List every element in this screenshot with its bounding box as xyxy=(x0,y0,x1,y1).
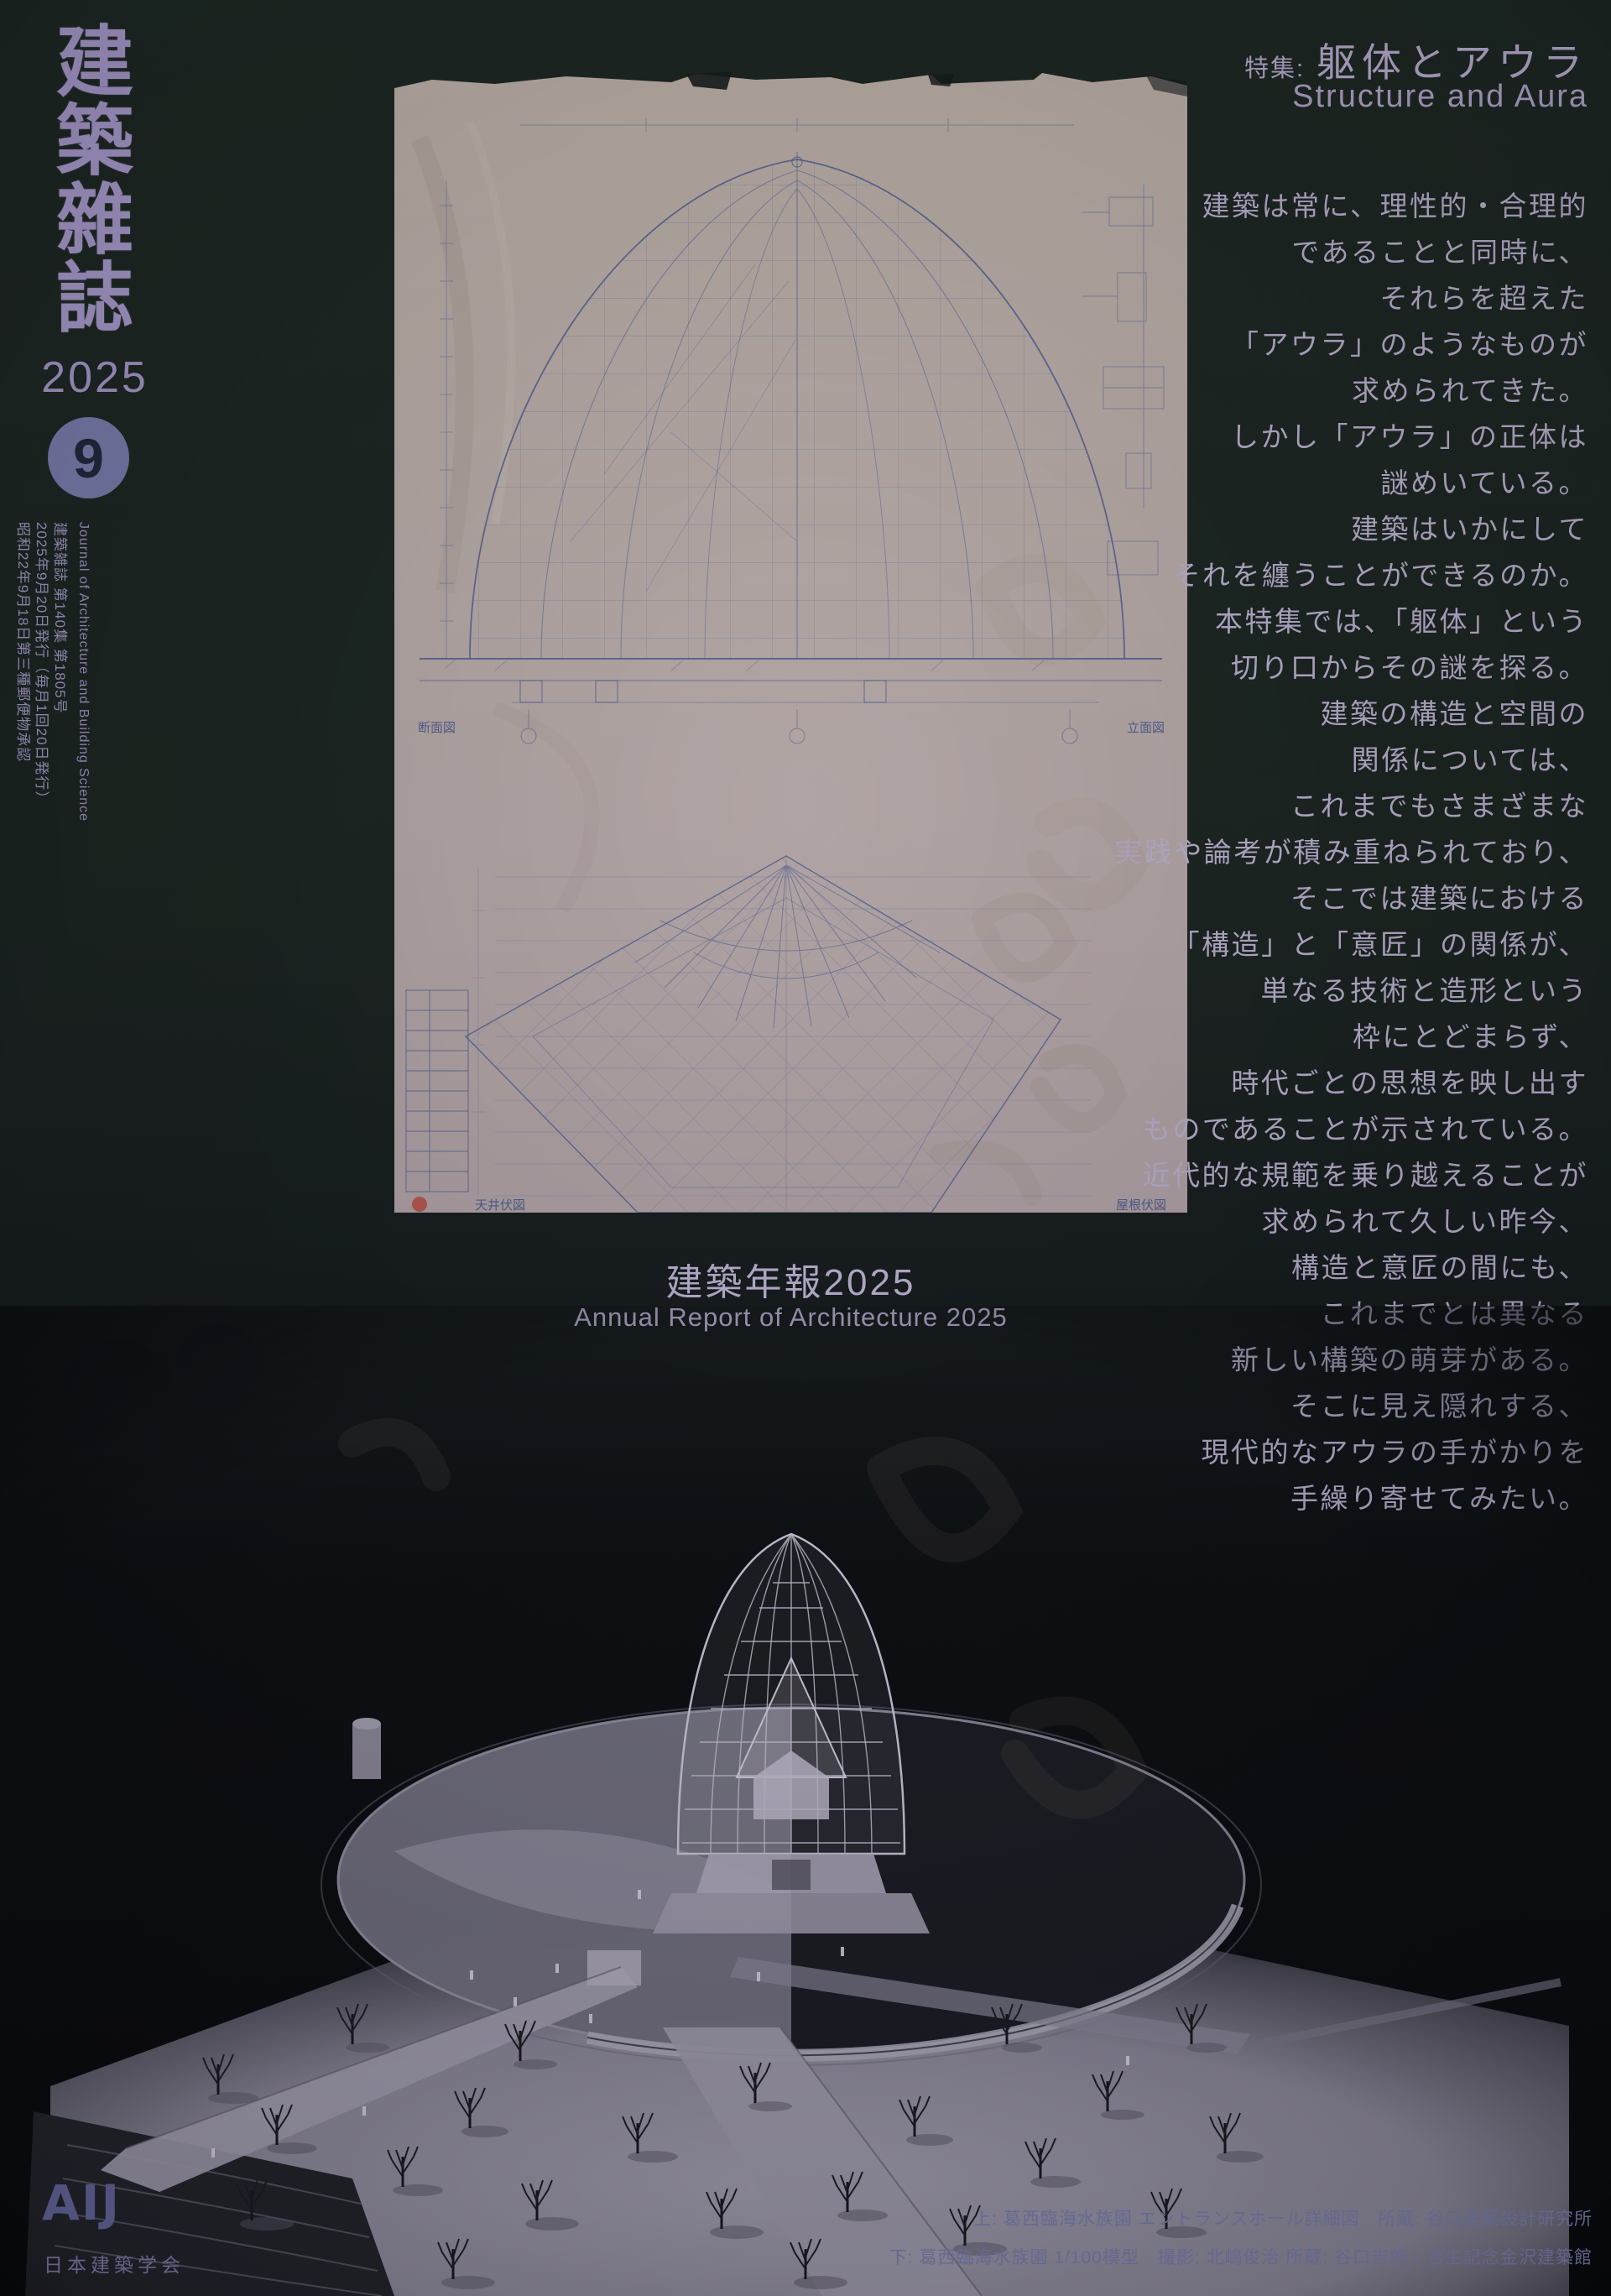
annual-report-title-jp: 建築年報2025 xyxy=(394,1252,1187,1306)
feature-title-en: Structure and Aura xyxy=(1292,79,1588,115)
blueprint-drawing: 断面図 立面図 天井伏図 屋根伏図 xyxy=(394,71,1187,1213)
issue-number: 9 xyxy=(73,430,104,486)
masthead-char-1: 建 xyxy=(49,23,141,101)
postal-approval: 昭和22年9月18日第三種郵便物承認 xyxy=(14,522,35,762)
credit-bottom-image: 下: 葛西臨海水族園 1/100模型 撮影: 北嶋俊治 所蔵: 谷口吉郎・吉生記… xyxy=(889,2244,1593,2269)
label-ceiling-plan: 天井伏図 xyxy=(475,1198,525,1213)
journal-name-en: Journal of Architecture and Building Sci… xyxy=(76,522,91,822)
red-seal xyxy=(412,1197,427,1212)
masthead-char-3: 雜 xyxy=(49,181,141,258)
magazine-cover: 建 築 雜 誌 2025 9 Journal of Architecture a… xyxy=(0,0,1611,2296)
issue-number-badge: 9 xyxy=(48,417,129,498)
credit-top-image: 上: 葛西臨海水族園 エントランスホール詳細図 所蔵: 谷口建築設計研究所 xyxy=(973,2205,1593,2231)
publisher-name: 日本建築学会 xyxy=(44,2249,185,2278)
masthead-char-2: 築 xyxy=(49,102,141,180)
issue-info: 建築雑誌 第140集 第1805号 xyxy=(51,522,72,714)
masthead-char-4: 誌 xyxy=(49,260,141,337)
publish-date: 2025年9月20日発行（毎月1回20日発行） xyxy=(33,522,54,806)
masthead-year: 2025 xyxy=(37,352,153,403)
aij-logo: AIJ xyxy=(42,2179,121,2227)
model-photo xyxy=(0,1306,1611,2296)
label-section: 断面図 xyxy=(418,721,456,735)
